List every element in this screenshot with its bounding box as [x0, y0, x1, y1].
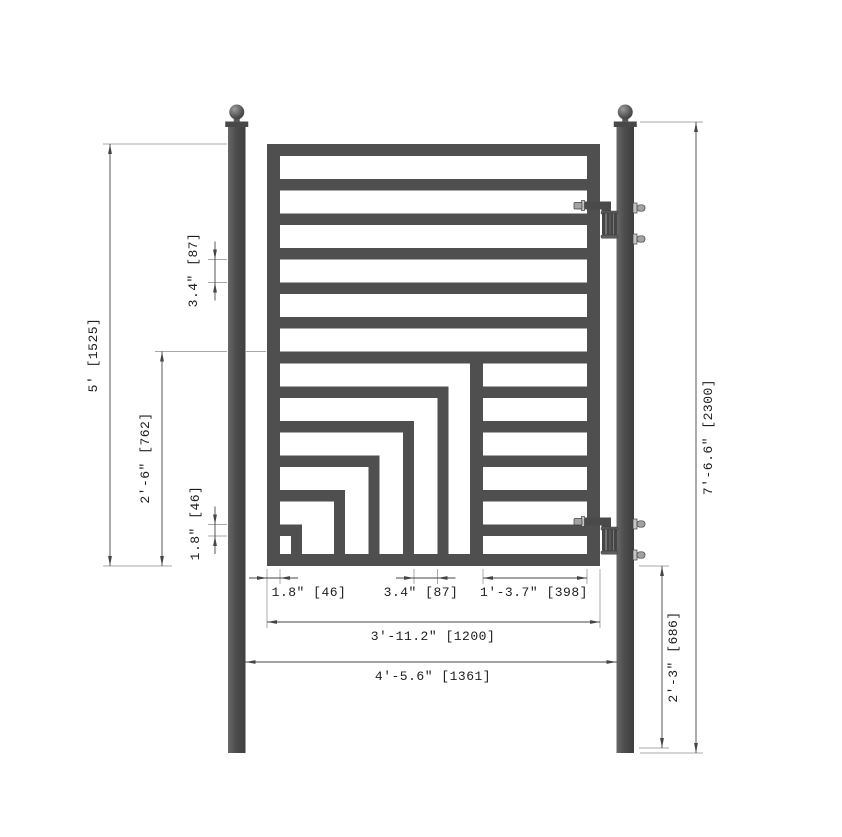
upper-horizontal-bar [280, 179, 587, 191]
hinge-washer [633, 519, 637, 529]
hinge-washer [633, 234, 637, 244]
dimension-label: 5' [1525] [86, 318, 101, 393]
upper-horizontal-bar [280, 317, 587, 329]
upper-horizontal-bar [280, 214, 587, 226]
drawing-canvas: 5' [1525]2'-6" [762]1.8" [46]3.4" [87]1.… [0, 0, 842, 837]
upper-horizontal-bar [280, 248, 587, 260]
post-body [228, 127, 246, 753]
gate-technical-drawing: 5' [1525]2'-6" [762]1.8" [46]3.4" [87]1.… [0, 0, 842, 837]
dimension-label: 3.4" [87] [186, 233, 201, 308]
hinge-bolt-left [574, 519, 582, 526]
center-divider-bar [470, 352, 483, 555]
maze-bar-horizontal [280, 421, 414, 433]
hinge-bolt-right [637, 236, 645, 242]
hinge-bolt-right [637, 205, 645, 211]
post-body [617, 127, 635, 753]
upper-horizontal-bar [280, 283, 587, 295]
maze-bar-vertical [438, 387, 449, 555]
hinge-bolt-right [637, 552, 645, 558]
frame-bottom-rail [267, 554, 600, 566]
right-post [614, 105, 637, 754]
dimension-label: 1'-3.7" [398] [480, 585, 588, 600]
dimension-label: 4'-5.6" [1361] [375, 669, 491, 684]
frame-left-stile [267, 144, 280, 566]
hinge-washer [633, 203, 637, 213]
maze-bar-vertical [403, 421, 414, 554]
frame-top-rail [267, 144, 600, 156]
dimension-label: 1.8" [46] [272, 585, 347, 600]
hinge-washer [633, 550, 637, 560]
hinge-barrel-cap-bottom [601, 551, 618, 554]
hinge-bolt-right [637, 521, 645, 527]
dimension-label: 7'-6.6" [2300] [701, 379, 716, 495]
dimension-label: 3.4" [87] [384, 585, 459, 600]
maze-bar-vertical [369, 456, 380, 555]
separator-bar [280, 352, 587, 364]
right-horizontal-bar [483, 490, 587, 502]
post-cap [225, 122, 248, 128]
maze-bar-vertical [291, 525, 302, 555]
dimension-label: 1.8" [46] [188, 486, 203, 561]
finial-ball [618, 105, 633, 120]
right-horizontal-bar [483, 456, 587, 468]
dimension-label: 3'-11.2" [1200] [371, 629, 496, 644]
finial-ball [229, 105, 244, 120]
right-horizontal-bar [483, 421, 587, 433]
right-horizontal-bar [483, 525, 587, 537]
dimension-label: 2'-3" [686] [666, 611, 681, 702]
maze-bar-horizontal [280, 387, 449, 399]
left-post [225, 105, 248, 754]
hinge-bolt-left [574, 203, 582, 210]
dimension-label: 2'-6" [762] [138, 412, 153, 503]
maze-bar-vertical [334, 490, 345, 554]
maze-bar-horizontal [280, 456, 380, 468]
right-horizontal-bar [483, 387, 587, 399]
hinge-barrel-cap-bottom [601, 235, 618, 238]
post-cap [614, 122, 637, 128]
